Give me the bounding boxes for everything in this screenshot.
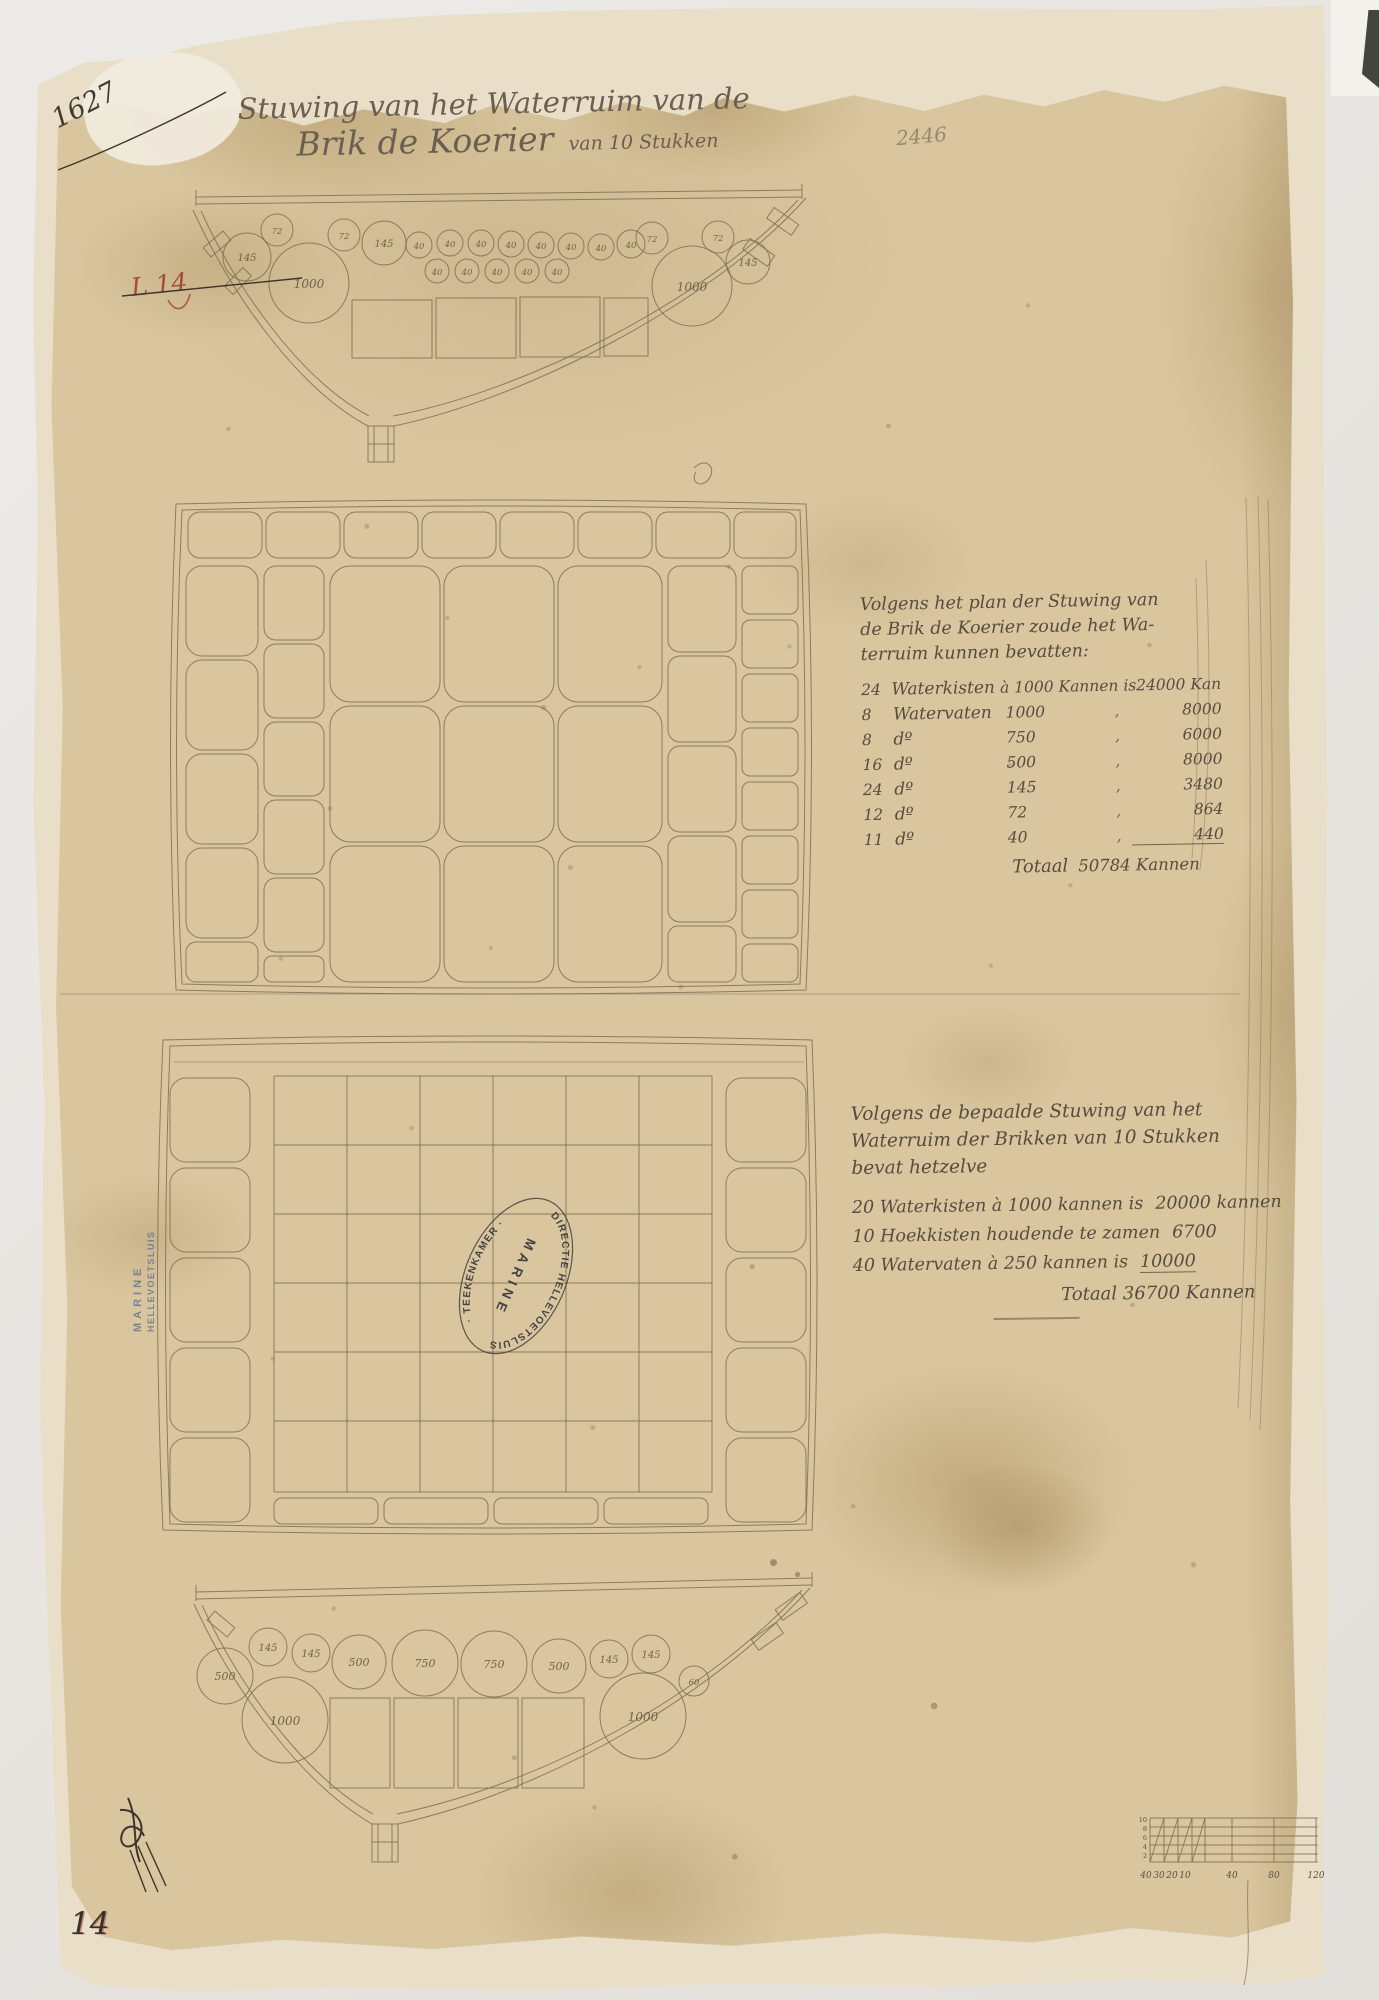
qty: 11 (864, 831, 896, 850)
row-value: 10000 (1140, 1251, 1196, 1273)
capacity-note-upper: Volgens het plan der Stuwing van de Brik… (860, 587, 1225, 880)
row-text: 40 Watervaten à 250 kannen is (853, 1252, 1129, 1276)
bottom-left-monogram (120, 1798, 166, 1892)
barrel-label: 40 (413, 242, 425, 252)
barrel-label: 1000 (270, 1714, 301, 1728)
amount: 6000 (1130, 725, 1223, 745)
scale-label: 10 (1179, 1871, 1191, 1881)
upper-plan-casks (186, 512, 798, 982)
qty: 16 (862, 756, 894, 775)
scale-label: 80 (1268, 1871, 1280, 1881)
row-text: 20 Waterkisten à 1000 kannen is (852, 1194, 1144, 1218)
barrel-label: 145 (641, 1650, 660, 1661)
barrel-label: 1000 (628, 1710, 659, 1724)
table-row: 11dº40,440 (864, 824, 1224, 855)
rate: 40 (1008, 827, 1117, 847)
sep: , (1115, 751, 1130, 769)
title-suffix: van 10 Stukken (568, 130, 718, 155)
qty: 12 (863, 806, 895, 825)
barrel-label: 500 (549, 1660, 570, 1673)
rate: 145 (1007, 777, 1116, 797)
sheet-number: 14 (70, 1906, 109, 1942)
drawing-title: Stuwing van het Waterruim van de Brik de… (237, 80, 798, 165)
item: dº (894, 753, 1007, 775)
scale-left-label: 2 (1143, 1852, 1147, 1860)
rate: 72 (1007, 802, 1116, 822)
qty: 24 (863, 781, 895, 800)
scale-left-label: 8 (1143, 1825, 1147, 1833)
barrel-label: 750 (415, 1657, 436, 1670)
barrel-label: 40 (595, 244, 607, 254)
barrel-label: 1000 (294, 277, 325, 291)
stamp-line-hellevoetsluis: HELLEVOETSLUIS (145, 1202, 158, 1332)
amount: 3480 (1130, 775, 1223, 795)
total-value: 36700 Kannen (1123, 1281, 1256, 1304)
vertical-marine-stamp: MARINE HELLEVOETSLUIS (132, 1202, 158, 1332)
item: Waterkisten (891, 678, 1000, 700)
barrel-label: 40 (565, 243, 577, 253)
barrel-label: 40 (475, 240, 487, 250)
ship-stowage-drawing: 145 72 1000 72 145 40 40 40 40 40 40 40 … (0, 0, 1379, 2000)
total-value: 50784 Kannen (1078, 854, 1200, 875)
pencil-inscription: 2446 (895, 122, 948, 150)
scanned-document-backdrop: 145 72 1000 72 145 40 40 40 40 40 40 40 … (0, 0, 1379, 2000)
title-ship-name: Brik de Koerier (296, 119, 554, 163)
scale-left-label: 4 (1143, 1843, 1147, 1851)
total-line-lower: Totaal 36700 Kannen (1061, 1281, 1283, 1305)
barrel-label: 145 (374, 239, 393, 250)
scale-label: 30 (1153, 1871, 1165, 1881)
amount: 8000 (1129, 700, 1222, 720)
barrel-label: 40 (551, 268, 563, 278)
rate: 1000 (1005, 702, 1114, 722)
barrel-label: 500 (349, 1656, 370, 1669)
amount: 864 (1131, 800, 1224, 820)
lower-plan-chest-grid (274, 1076, 712, 1492)
sep: , (1114, 701, 1129, 719)
note-line: terruim kunnen bevatten: (860, 637, 1220, 668)
item: Watervaten (893, 703, 1006, 725)
top-cross-section-drawing: 145 72 1000 72 145 40 40 40 40 40 40 40 … (193, 184, 806, 462)
total-label: Totaal (1061, 1283, 1117, 1305)
barrel-label: 40 (535, 242, 547, 252)
barrel-label: 72 (272, 227, 283, 237)
oval-office-stamp: DIRECTIE HELLEVOETSLUIS · TEEKENKAMER · … (437, 1181, 595, 1371)
capacity-table-lower: 20 Waterkisten à 1000 kannen is20000 kan… (852, 1192, 1283, 1285)
barrel-label: 145 (237, 253, 256, 264)
barrel-label: 72 (713, 234, 724, 244)
barrel-label: 40 (505, 241, 517, 251)
barrel-label: 500 (215, 1670, 236, 1683)
scale-label: 20 (1165, 1871, 1178, 1881)
barrel-label: 40 (491, 268, 503, 278)
qty: 8 (861, 706, 893, 725)
row-text: 10 Hoekkisten houdende te zamen (852, 1223, 1160, 1247)
barrel-label: 145 (599, 1655, 618, 1666)
capacity-note-lower: Volgens de bepaalde Stuwing van het Wate… (850, 1095, 1283, 1322)
amount: 440 (1131, 825, 1224, 846)
barrel-label: 40 (431, 268, 443, 278)
note-line: bevat hetzelve (851, 1149, 1281, 1182)
barrel-label: 72 (647, 235, 658, 245)
lower-stowage-plan-drawing: DIRECTIE HELLEVOETSLUIS · TEEKENKAMER · … (158, 1036, 818, 1534)
barrel-label: 40 (625, 241, 637, 251)
barrel-label: 60 (689, 1678, 700, 1688)
amount: 8000 (1130, 750, 1223, 770)
upper-stowage-plan-drawing (171, 500, 812, 994)
scale-left-label: 6 (1143, 1834, 1147, 1842)
rate: 500 (1006, 752, 1115, 772)
capacity-table-upper: 24Waterkistenà 1000 Kannen is24000 Kan 8… (861, 674, 1224, 855)
bottom-cross-section-drawing: 500 145 145 500 750 750 500 145 145 60 1… (194, 1572, 812, 1862)
barrel-label: 40 (521, 268, 533, 278)
scale-label: 40 (1139, 1871, 1152, 1881)
rate: 750 (1006, 727, 1115, 747)
row-value: 6700 (1172, 1222, 1217, 1243)
total-line-upper: Totaal50784 Kannen (1012, 853, 1224, 878)
barrel-label: 145 (258, 1643, 277, 1654)
scale-label: 120 (1307, 1871, 1324, 1881)
amount: 24000 Kan (1132, 675, 1221, 695)
barrel-label: 40 (461, 268, 473, 278)
sep: , (1116, 776, 1131, 794)
barrel-label: 145 (301, 1649, 320, 1660)
qty: 24 (861, 681, 892, 700)
scale-left-label: 10 (1139, 1816, 1147, 1824)
stamp-center-text: MARINE (491, 1236, 539, 1318)
drawing-scale-bar: 40 30 20 10 40 80 120 10 8 6 4 2 (1139, 1816, 1325, 1881)
barrel-label: 40 (444, 240, 456, 250)
row-value: 20000 kannen (1155, 1192, 1282, 1214)
qty: 8 (862, 731, 894, 750)
sep: , (1116, 801, 1131, 819)
red-mark-text: L 14 (129, 267, 189, 302)
red-mark-group: L 14 (122, 267, 302, 308)
item: dº (894, 778, 1007, 800)
scale-label: 40 (1225, 1871, 1238, 1881)
rate: à 1000 Kannen is (1000, 677, 1118, 697)
item: dº (895, 803, 1008, 825)
barrel-label: 1000 (677, 280, 708, 294)
table-row: 40 Watervaten à 250 kannen is10000 (853, 1250, 1283, 1285)
barrel-label: 145 (738, 258, 757, 269)
item: dº (895, 828, 1008, 850)
barrel-label: 72 (339, 232, 350, 242)
sep: , (1117, 826, 1132, 844)
barrel-label: 750 (484, 1658, 505, 1671)
sep: , (1115, 726, 1130, 744)
total-label: Totaal (1012, 856, 1068, 878)
stamp-line-marine: MARINE (132, 1202, 145, 1332)
item: dº (893, 728, 1006, 750)
